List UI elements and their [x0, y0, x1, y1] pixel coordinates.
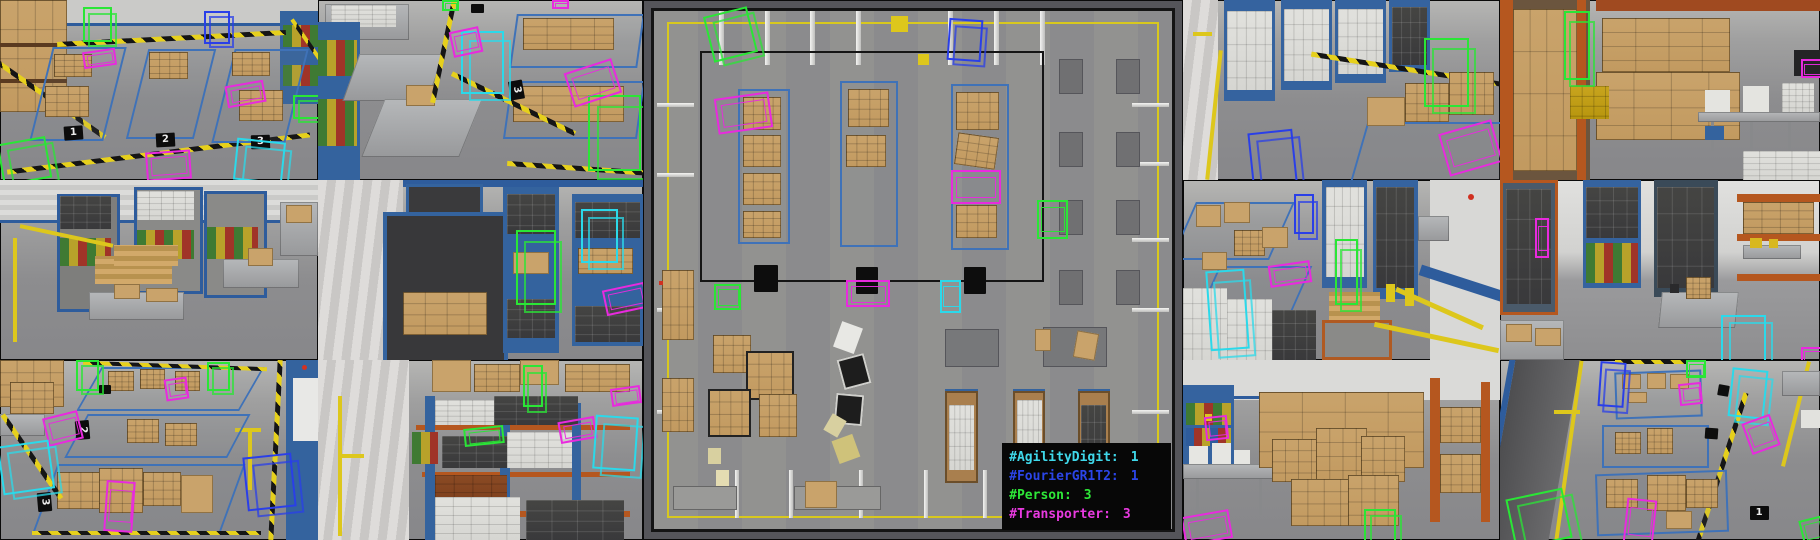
yellow-line [338, 454, 364, 458]
detection-box-agilitydigit [1206, 269, 1250, 351]
bin-rows [1657, 187, 1715, 288]
crate-stack [1291, 479, 1354, 526]
detection-box-face [1627, 506, 1653, 537]
pallet [954, 132, 999, 170]
detection-box-transporter [1623, 497, 1657, 540]
detection-box-agilitydigit [1728, 367, 1769, 419]
detection-box-face [562, 422, 593, 440]
detection-box-transporter [164, 377, 190, 402]
detection-box-transporter [1183, 509, 1234, 540]
detection-box-face [1256, 136, 1305, 180]
detection-box-face [209, 16, 235, 48]
detection-box-face [1803, 522, 1820, 540]
pallet [743, 211, 781, 238]
detection-box-face [851, 286, 886, 303]
detection-box-face [298, 100, 318, 123]
detection-box-face [597, 106, 643, 180]
detection-box-transporter [714, 91, 774, 135]
legend-count: 3 [1123, 507, 1131, 522]
detection-box-agilitydigit [940, 280, 961, 314]
detection-box-face [1214, 279, 1257, 359]
detection-box-face [1298, 201, 1317, 240]
box-stack [1196, 205, 1221, 227]
detection-box-face [454, 32, 480, 52]
box-stack [1234, 230, 1266, 255]
detection-box-face [614, 390, 639, 404]
detection-box-face [953, 25, 989, 68]
table [1698, 112, 1820, 123]
crate-rows [1586, 243, 1637, 283]
detection-box-person [1364, 509, 1397, 540]
detection-box-face [469, 429, 501, 443]
column [657, 173, 695, 177]
yellow-line [13, 238, 17, 342]
conveyor [673, 486, 738, 510]
legend-label: #AgilityDigit: [1009, 450, 1119, 465]
pallet-stack [57, 472, 102, 510]
camera-view-4[interactable] [318, 180, 643, 360]
camera-view-12[interactable]: 1 [1500, 360, 1820, 540]
detection-box-person [442, 0, 459, 11]
crate-stack [435, 400, 494, 425]
column [1132, 238, 1170, 242]
camera-view-10[interactable] [1500, 180, 1820, 360]
detection-box-face [1516, 493, 1582, 540]
wall [318, 360, 409, 540]
floor-plate [1717, 384, 1730, 397]
column [657, 103, 695, 107]
column [1132, 410, 1170, 414]
white-box [1212, 443, 1231, 465]
bin-rows [1284, 9, 1328, 81]
detection-box-face [1804, 351, 1820, 360]
detection-box-transporter [846, 280, 891, 308]
pallet [846, 135, 887, 167]
crate-stack [1272, 310, 1316, 360]
detection-box-person [1564, 11, 1590, 80]
detection-box-agilitydigit [1721, 315, 1767, 360]
box [114, 284, 139, 298]
pallet-stack [708, 389, 751, 438]
box [1035, 329, 1051, 351]
detection-box-face [1187, 516, 1228, 540]
box [248, 248, 273, 266]
rack-upright [1481, 382, 1491, 522]
slab [1116, 270, 1140, 305]
detection-box-face [555, 3, 568, 8]
door [293, 378, 318, 441]
pallet-stack [143, 472, 181, 506]
detection-box-person [714, 284, 741, 311]
crate-stack [318, 99, 357, 146]
detection-box-transporter [951, 170, 1001, 204]
legend-count: 1 [1131, 469, 1139, 484]
detection-box-face [230, 85, 263, 104]
detection-box-face [88, 13, 117, 47]
white-box [1189, 446, 1208, 464]
pallet-stack [523, 18, 614, 50]
detection-box-transporter [1801, 347, 1820, 360]
detection-box-person [1037, 200, 1068, 239]
detection-box-agilitydigit [0, 439, 55, 495]
detection-box-face [1804, 64, 1820, 75]
column [1132, 103, 1170, 107]
detection-box-face [445, 3, 458, 10]
table-leg [1196, 479, 1199, 515]
detection-box-face [81, 365, 104, 395]
detection-box-face [252, 460, 304, 518]
pallet [1647, 373, 1666, 389]
box [146, 288, 178, 302]
detection-box-person [463, 425, 504, 447]
shelf-unit [383, 212, 508, 360]
legend-count: 1 [1131, 450, 1139, 465]
table-leg [1788, 122, 1791, 151]
box-stack [1262, 227, 1287, 249]
crate-stack [1743, 202, 1813, 234]
hazard-tape [32, 531, 261, 535]
pallet-stack [1615, 432, 1641, 454]
detection-box-person [1424, 38, 1469, 107]
work-table [362, 99, 483, 157]
detection-box-person [0, 136, 52, 180]
slab [1116, 59, 1140, 94]
legend-label: #Person: [1009, 488, 1072, 503]
detection-box-person [516, 230, 556, 304]
camera-view-5[interactable]: 23 [0, 360, 318, 540]
detection-box-face [608, 288, 643, 311]
yellow-item [1769, 239, 1779, 248]
pallet [956, 205, 997, 237]
table-leg [1259, 479, 1262, 515]
detection-box-face [1748, 421, 1777, 448]
detection-box-face [86, 53, 113, 66]
pallet-stack [127, 419, 159, 442]
detection-box-face [1538, 226, 1548, 251]
floor-marker: 1 [63, 125, 83, 140]
pallet-stack [662, 378, 694, 432]
rack-upright [1430, 378, 1440, 522]
detection-box-face [212, 367, 235, 395]
detection-box-person [207, 362, 230, 391]
floor-marker: 1 [1750, 506, 1769, 520]
pallet-stack [108, 371, 133, 391]
detection-box-person [1335, 239, 1358, 304]
pallet-stack [232, 52, 270, 75]
detection-box-face [1569, 21, 1595, 88]
detection-box-face [718, 289, 739, 306]
detection-box-agilitydigit [592, 414, 639, 471]
box-stack [1224, 202, 1249, 224]
rack-upright [1500, 0, 1513, 180]
log-stack [114, 245, 178, 267]
detection-box-transporter [1678, 382, 1703, 406]
detection-box-face [47, 417, 79, 441]
detection-box-transporter [552, 0, 569, 9]
bin-rows [1392, 7, 1427, 65]
camera-view-1[interactable]: 123 [0, 0, 318, 180]
slab [1116, 132, 1140, 167]
rack-upright [425, 396, 435, 540]
detection-box-person [293, 95, 318, 119]
detection-box-face [6, 142, 60, 180]
table [1782, 371, 1820, 396]
detection-box-face [168, 382, 187, 398]
crate-stack [1440, 407, 1481, 443]
pallet-stack [1686, 479, 1718, 508]
pallet-stack [746, 351, 795, 400]
detection-box-agilitydigit [233, 138, 286, 180]
box [805, 481, 837, 508]
detection-box-fouriergr1t2 [242, 453, 296, 512]
pallet [956, 92, 999, 130]
box [1506, 324, 1532, 342]
legend: #AgilityDigit:1#FourierGR1T2:1#Person:3#… [1002, 443, 1170, 530]
pallet [1666, 511, 1692, 529]
column [983, 470, 987, 519]
floor-plate [754, 265, 778, 292]
box-row [403, 292, 488, 335]
detection-box-face [7, 446, 63, 500]
detection-box-transporter [1535, 218, 1549, 258]
white-box [1743, 86, 1769, 111]
legend-entry: #FourierGR1T2:1 [1009, 467, 1163, 486]
multi-camera-monitor: 123 3 [0, 0, 1820, 540]
rack-beam [1737, 274, 1820, 281]
detection-box-person [523, 365, 543, 407]
detection-box-fouriergr1t2 [947, 18, 984, 62]
camera-view-7[interactable] [1183, 0, 1500, 180]
crate-stack [435, 497, 520, 540]
slab [1116, 200, 1140, 235]
legend-count: 3 [1084, 488, 1092, 503]
detection-box-face [1273, 265, 1308, 283]
detection-box-face [524, 241, 563, 313]
yellow-line [1193, 32, 1212, 36]
pallet-stack [759, 394, 797, 437]
detection-box-face [1208, 420, 1227, 436]
detection-box-face [1340, 249, 1362, 312]
pallet [181, 475, 213, 513]
white-box [1705, 90, 1731, 112]
detection-box-face [1370, 515, 1402, 540]
detection-box-face [108, 489, 133, 522]
detection-box-transporter [1267, 260, 1312, 288]
detection-box-fouriergr1t2 [1598, 361, 1627, 408]
detection-box-face [956, 177, 996, 198]
legend-entry: #Person:3 [1009, 486, 1163, 505]
yellow-line [338, 396, 342, 536]
pallet [848, 89, 889, 127]
detection-box-face [571, 66, 615, 100]
detection-box-face [151, 156, 188, 177]
detection-box-fouriergr1t2 [1294, 194, 1314, 234]
paper [708, 448, 722, 464]
camera-view-2[interactable]: 3 [318, 0, 643, 180]
small-item [1670, 284, 1680, 293]
pallet-stack [10, 382, 55, 414]
white-crate [1743, 151, 1820, 180]
box-stack [474, 364, 520, 393]
slab [1059, 59, 1083, 94]
detection-box-face [1682, 387, 1701, 402]
white-shelf [1801, 410, 1820, 428]
detection-box-face [943, 286, 959, 307]
detection-box-face [1729, 322, 1773, 360]
box [1686, 277, 1712, 299]
table-leg [1750, 122, 1753, 151]
map-view[interactable]: #AgilityDigit:1#FourierGR1T2:1#Person:3#… [643, 0, 1183, 540]
camera-view-9[interactable] [1183, 180, 1500, 360]
detection-box-person [83, 7, 112, 42]
detection-box-agilitydigit [581, 209, 618, 263]
detection-box-transporter [557, 416, 597, 444]
bin-rows [1376, 187, 1414, 288]
crate-stack [1440, 454, 1481, 494]
floor-plate [964, 267, 986, 294]
yellow-post [1386, 284, 1396, 302]
detection-box-person [1686, 360, 1706, 378]
slab [1059, 270, 1083, 305]
wall [1183, 0, 1218, 180]
legend-label: #FourierGR1T2: [1009, 469, 1119, 484]
crate-stack [1272, 439, 1323, 482]
floor-marker: 2 [155, 133, 175, 148]
shelf [1418, 216, 1450, 241]
camera-view-6[interactable] [318, 360, 643, 540]
pallet-stack [45, 86, 90, 117]
floor-plate [471, 4, 484, 13]
box-stack [1202, 252, 1227, 270]
slab [1059, 132, 1083, 167]
column [1132, 308, 1170, 312]
white-box [1782, 83, 1814, 112]
detection-box-transporter [103, 480, 136, 533]
detection-box-face [721, 99, 768, 128]
box [1535, 328, 1561, 346]
detection-box-person [588, 95, 641, 171]
bin-row [137, 191, 194, 220]
column [924, 470, 928, 519]
detection-box-face [1041, 207, 1065, 231]
detection-box-transporter [1801, 59, 1820, 77]
detection-box-face [241, 145, 292, 180]
crate-stack [318, 40, 357, 76]
yellow-item [1750, 238, 1763, 249]
detection-box-transporter [1204, 415, 1229, 441]
boundary-notch [891, 16, 907, 32]
pallet-stack [1647, 428, 1673, 453]
detection-box-face [1446, 129, 1495, 167]
bin-rows [1227, 11, 1271, 90]
crate-stack [526, 500, 624, 540]
detection-box-face [527, 372, 547, 413]
pallet [743, 173, 781, 205]
camera-view-11[interactable] [1183, 360, 1500, 540]
rack-beam [1596, 0, 1820, 11]
pallet-stack [165, 423, 197, 446]
rack-boxes [949, 405, 974, 470]
legend-entry: #AgilityDigit:1 [1009, 448, 1163, 467]
detection-box-transporter [145, 150, 192, 180]
detection-box-face [1603, 368, 1632, 414]
camera-view-8[interactable] [1500, 0, 1820, 180]
detection-box-fouriergr1t2 [1247, 129, 1297, 180]
floor-plate [1704, 428, 1718, 440]
blue-bin [1705, 126, 1724, 140]
detection-box-person [76, 360, 99, 391]
red-mark [659, 281, 663, 285]
camera-view-3[interactable] [0, 180, 318, 360]
bin-row [60, 196, 111, 228]
detection-box-person [1798, 516, 1820, 540]
box [432, 360, 471, 392]
box-stack [1367, 97, 1405, 126]
bin-rows [1586, 187, 1637, 237]
detection-box-face [1689, 364, 1704, 375]
crate-yellow [1570, 86, 1608, 118]
pallet [1628, 392, 1647, 403]
detection-box-fouriergr1t2 [204, 11, 230, 44]
white-box [1234, 450, 1250, 464]
yellow-line [1554, 410, 1580, 414]
box [286, 205, 311, 223]
pallet-stack [140, 369, 165, 389]
rack-beam [1737, 194, 1820, 201]
table [945, 329, 999, 367]
crate-stack [1602, 18, 1730, 72]
detection-box-transporter [609, 385, 641, 407]
bin-row [507, 194, 556, 234]
pallet-stack [662, 270, 694, 340]
legend-entry: #Transporter:3 [1009, 505, 1163, 524]
paper [716, 470, 730, 486]
column [789, 470, 793, 519]
detection-box-face [588, 217, 624, 270]
legend-label: #Transporter: [1009, 507, 1111, 522]
crate-stack [412, 432, 438, 464]
pallet [743, 135, 781, 167]
detection-box-face [600, 423, 643, 479]
pallet-stack [149, 52, 187, 79]
detection-box-face [1432, 48, 1476, 115]
